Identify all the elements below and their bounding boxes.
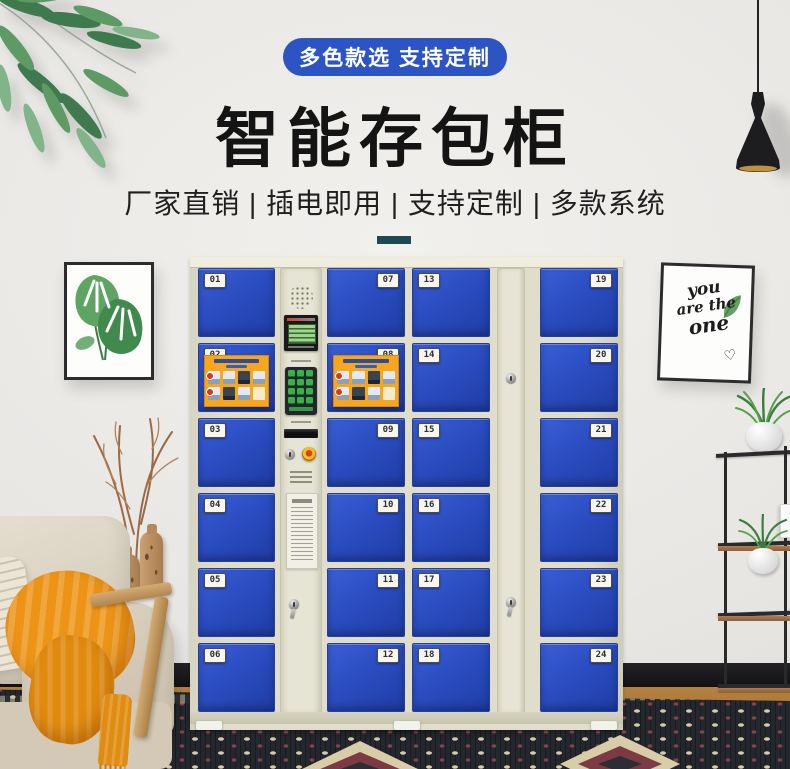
alarm-button-icon [302, 447, 316, 461]
keyhole-icon [506, 597, 516, 607]
keyhole-icon [285, 449, 295, 459]
door-number-plate: 24 [590, 648, 612, 663]
locker-column-b: 07 08 09 10 11 12 [327, 268, 405, 712]
locker-door: 05 [198, 568, 275, 637]
potted-plant [738, 514, 788, 552]
locker-door: 07 [327, 268, 405, 337]
door-number-plate: 05 [204, 573, 226, 588]
locker-column-d: 19 20 21 22 23 24 [540, 268, 618, 712]
locker-door: 18 [412, 643, 490, 712]
cabinet-foot [591, 721, 617, 730]
product-hero-image: 多色款选 支持定制 智能存包柜 厂家直销 | 插电即用 | 支持定制 | 多款系… [0, 0, 790, 769]
hanging-key-icon [290, 609, 296, 619]
plant-pot [748, 548, 778, 574]
door-number-plate: 15 [418, 423, 440, 438]
speaker-grille-icon [289, 285, 313, 309]
locker-door: 12 [327, 643, 405, 712]
locker-door: 03 [198, 418, 275, 487]
door-number-plate: 23 [590, 573, 612, 588]
door-number-plate: 06 [204, 648, 226, 663]
hanging-key-icon [507, 607, 513, 617]
locker-door: 08 [327, 343, 405, 412]
product-title: 智能存包柜 [0, 88, 790, 180]
cabinet-foot [394, 721, 420, 730]
instruction-sheet [286, 493, 318, 569]
door-number-plate: 14 [418, 348, 440, 363]
locker-column-c: 13 14 15 16 17 18 [412, 268, 490, 712]
product-subtitle: 厂家直销 | 插电即用 | 支持定制 | 多款系统 [0, 182, 790, 222]
door-number-plate: 11 [377, 573, 399, 588]
panel-label [291, 421, 311, 423]
locker-door: 04 [198, 493, 275, 562]
shelf-wood [718, 616, 790, 621]
door-number-plate: 17 [418, 573, 440, 588]
wall-art-monstera [64, 262, 154, 380]
door-number-plate: 04 [204, 498, 226, 513]
door-number-plate: 12 [377, 648, 399, 663]
quote-text: you are the one [659, 275, 754, 341]
locker-door: 20 [540, 343, 618, 412]
door-number-plate: 16 [418, 498, 440, 513]
door-number-plate: 18 [418, 648, 440, 663]
plant-pot [746, 422, 782, 452]
panel-text-lines [290, 471, 312, 483]
panel-label [291, 360, 311, 362]
door-number-plate: 21 [590, 423, 612, 438]
rug-medallion [560, 735, 680, 769]
locker-door: 10 [327, 493, 405, 562]
service-column [497, 268, 525, 714]
locker-door: 21 [540, 418, 618, 487]
sofa [0, 498, 198, 769]
keypad [285, 367, 317, 415]
cabinet-foot [196, 721, 222, 730]
locker-door: 17 [412, 568, 490, 637]
locker-door: 24 [540, 643, 618, 712]
door-number-plate: 03 [204, 423, 226, 438]
door-number-plate: 10 [377, 498, 399, 513]
locker-door: 22 [540, 493, 618, 562]
door-number-plate: 01 [204, 273, 226, 288]
shelf-bar [716, 450, 790, 458]
door-number-plate: 19 [590, 273, 612, 288]
locker-door: 19 [540, 268, 618, 337]
locker-door: 23 [540, 568, 618, 637]
throw-fringe [98, 693, 133, 767]
door-number-plate: 22 [590, 498, 612, 513]
display-shelf [716, 386, 790, 708]
lamp-cord [757, 0, 759, 96]
locker-door: 02 [198, 343, 275, 412]
heart-icon: ♡ [723, 346, 738, 365]
locker-door: 06 [198, 643, 275, 712]
shelf-wood [718, 688, 790, 693]
door-number-plate: 09 [377, 423, 399, 438]
shelf-post [784, 446, 787, 686]
control-panel [280, 268, 322, 714]
instruction-poster [333, 355, 399, 407]
shelf-post [724, 452, 727, 690]
door-number-plate: 07 [377, 273, 399, 288]
locker-door: 13 [412, 268, 490, 337]
wall-art-quote: you are the one ♡ [657, 262, 755, 383]
instruction-poster [204, 355, 269, 407]
keyhole-icon [506, 373, 516, 383]
locker-door: 14 [412, 343, 490, 412]
door-number-plate: 20 [590, 348, 612, 363]
locker-door: 09 [327, 418, 405, 487]
smart-locker-cabinet: 01 02 03 04 05 06 [190, 257, 623, 730]
ticket-slot [284, 429, 318, 438]
locker-door: 15 [412, 418, 490, 487]
door-number-plate: 13 [418, 273, 440, 288]
cabinet-top-rim [190, 257, 623, 268]
keyhole-icon [289, 599, 299, 609]
rug-medallion [300, 741, 420, 769]
locker-column-a: 01 02 03 04 05 06 [198, 268, 275, 712]
locker-door: 01 [198, 268, 275, 337]
locker-door: 16 [412, 493, 490, 562]
promo-badge: 多色款选 支持定制 [283, 38, 507, 76]
lcd-screen [284, 315, 318, 351]
locker-door: 11 [327, 568, 405, 637]
title-divider [377, 236, 411, 244]
